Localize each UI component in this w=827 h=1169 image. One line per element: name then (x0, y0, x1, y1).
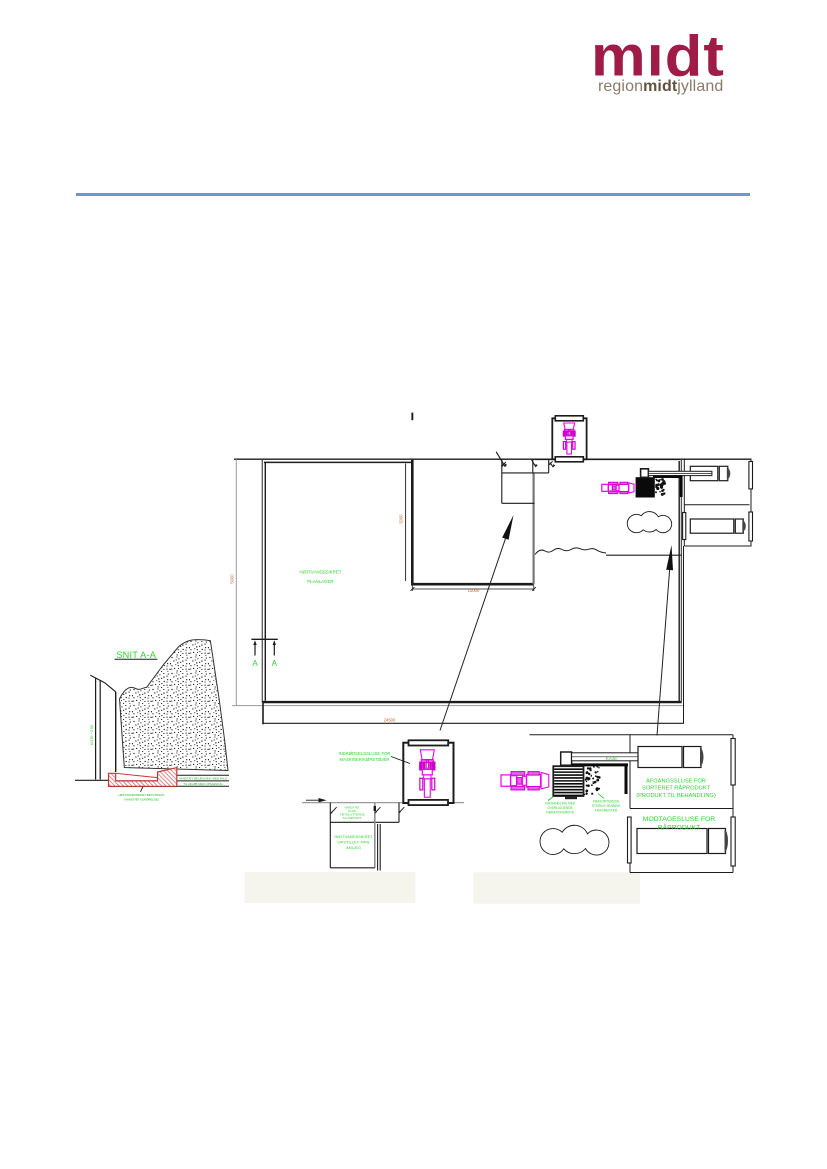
svg-text:FRAGMENTER: FRAGMENTER (595, 809, 618, 813)
svg-text:SLUSEPORT: SLUSEPORT (343, 816, 362, 820)
svg-text:RÅPRODUKT: RÅPRODUKT (658, 822, 701, 831)
svg-text:SNIT A-A: SNIT A-A (116, 650, 156, 660)
svg-text:HØJTVANDSSIKRET BETONKANT: HØJTVANDSSIKRET BETONKANT (118, 793, 164, 797)
svg-text:(PRODUKT TIL BEHANDLING): (PRODUKT TIL BEHANDLING) (636, 793, 716, 799)
svg-text:OPSTILLET TRIN: OPSTILLET TRIN (338, 840, 370, 845)
svg-text:SORTERET RÅPRODUKT: SORTERET RÅPRODUKT (642, 785, 711, 792)
svg-text:I BEHANDLING MED: I BEHANDLING MED (545, 801, 576, 805)
svg-text:ANLÆG: ANLÆG (346, 845, 361, 850)
svg-text:MODTAGESLUSE FOR: MODTAGESLUSE FOR (643, 816, 715, 823)
svg-text:VANDTÆT BELÆGNING MED FALD: VANDTÆT BELÆGNING MED FALD (179, 777, 227, 781)
svg-text:24500: 24500 (384, 717, 396, 722)
svg-text:HØJTVANDSSIKRET: HØJTVANDSSIKRET (299, 569, 341, 574)
svg-text:STERILE GENNEM: STERILE GENNEM (592, 804, 621, 808)
svg-text:A: A (252, 659, 258, 668)
svg-text:INDKØRSELSSLUSE FOR: INDKØRSELSSLUSE FOR (338, 751, 390, 756)
svg-text:MASKINER/KØRETØJER: MASKINER/KØRETØJER (340, 757, 390, 762)
svg-text:OVERLIGGENDE: OVERLIGGENDE (547, 806, 573, 810)
svg-text:TIL AFLØB MED OPSAMLING: TIL AFLØB MED OPSAMLING (183, 782, 223, 786)
svg-text:KOTE +2.50: KOTE +2.50 (90, 725, 94, 745)
svg-text:PLANLAGER: PLANLAGER (307, 579, 333, 584)
svg-text:5000: 5000 (398, 514, 403, 524)
svg-text:15000: 15000 (468, 588, 480, 593)
svg-text:AFGANGSSLUSE FOR: AFGANGSSLUSE FOR (646, 778, 706, 784)
svg-text:VIBRATIONSRISTE: VIBRATIONSRISTE (546, 811, 574, 815)
svg-text:(VANDTÆT UDFØRELSE): (VANDTÆT UDFØRELSE) (124, 798, 159, 802)
svg-text:5000: 5000 (230, 574, 235, 584)
svg-text:KAJE: KAJE (606, 756, 618, 761)
svg-text:FRASORTEREDE: FRASORTEREDE (593, 799, 619, 803)
svg-text:HØJTVANDSSIKRET: HØJTVANDSSIKRET (334, 834, 373, 839)
svg-text:A: A (272, 659, 278, 668)
